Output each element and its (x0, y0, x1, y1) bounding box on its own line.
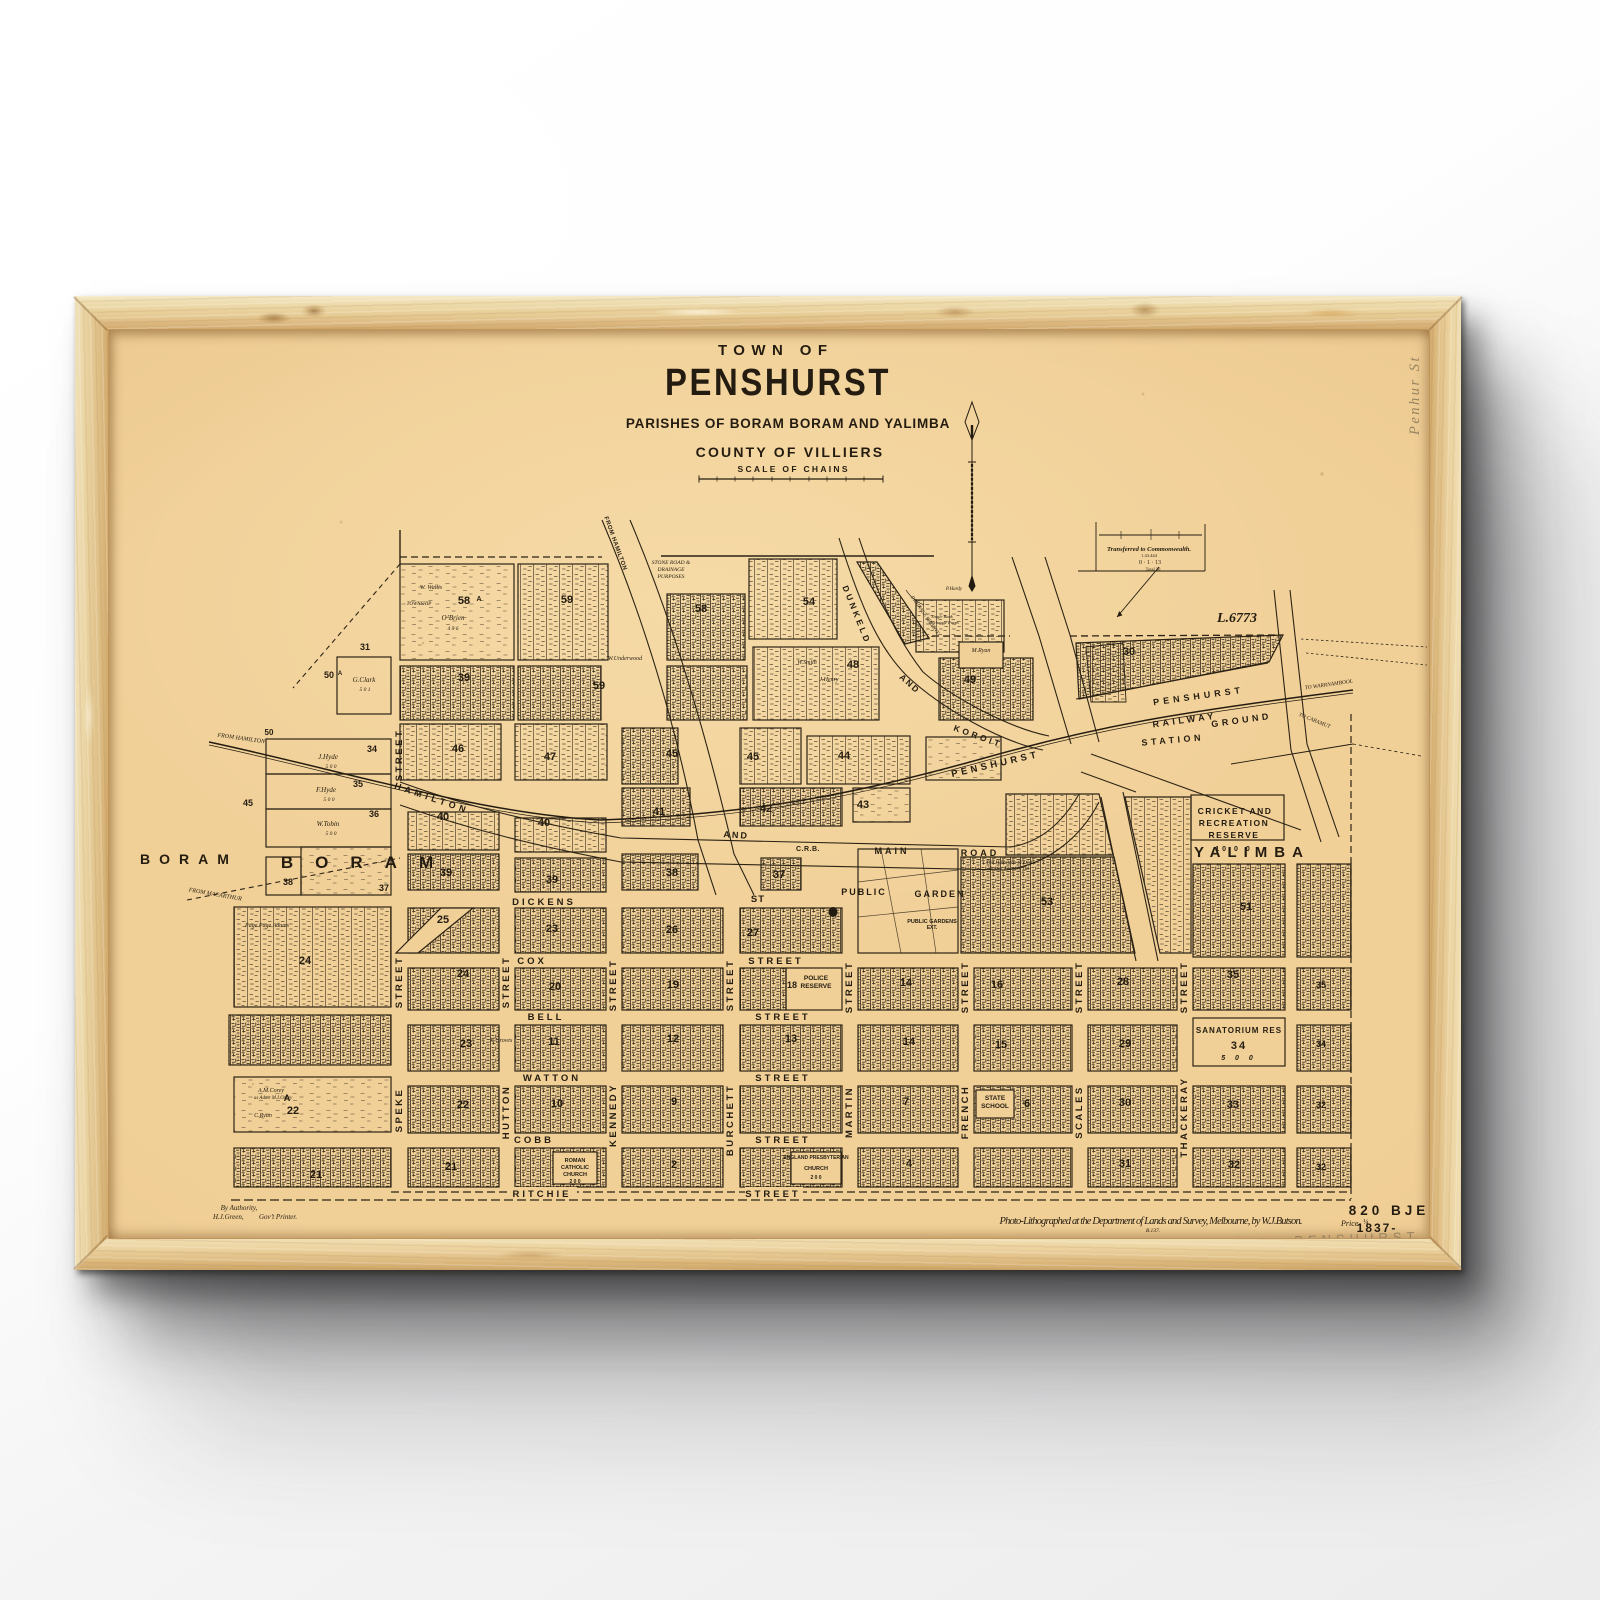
svg-text:42: 42 (760, 803, 772, 815)
svg-text:5 0 0: 5 0 0 (324, 797, 335, 803)
svg-text:46: 46 (452, 743, 464, 755)
svg-text:W.Tobin: W.Tobin (317, 820, 340, 828)
svg-text:59: 59 (561, 594, 573, 606)
svg-text:F.Hyde: F.Hyde (315, 786, 336, 794)
svg-text:43: 43 (857, 799, 869, 811)
svg-text:FROM MACARTHUR: FROM MACARTHUR (187, 887, 242, 902)
svg-text:24: 24 (457, 968, 470, 980)
svg-text:DUNKELD: DUNKELD (840, 584, 873, 646)
svg-text:WATTON: WATTON (523, 1073, 581, 1084)
svg-text:BORAM: BORAM (281, 853, 455, 872)
svg-text:23: 23 (546, 923, 558, 935)
svg-text:30: 30 (1119, 1097, 1131, 1109)
svg-text:G.Clark: G.Clark (353, 676, 377, 684)
svg-text:A.M.Corey: A.M.Corey (257, 1088, 284, 1094)
svg-text:59: 59 (593, 680, 605, 692)
svg-text:20: 20 (549, 981, 561, 993)
svg-text:53: 53 (1041, 896, 1053, 908)
svg-text:33: 33 (1227, 1099, 1239, 1111)
svg-text:H.J.Green,: H.J.Green, (212, 1213, 244, 1221)
svg-text:STREET: STREET (960, 961, 971, 1013)
svg-text:P.Hardy: P.Hardy (945, 587, 963, 592)
svg-text:YALIMBA: YALIMBA (1194, 844, 1310, 861)
svg-text:5 0 0: 5 0 0 (326, 831, 337, 837)
svg-text:41: 41 (653, 806, 665, 818)
svg-text:TO WARRNAMBOOL: TO WARRNAMBOOL (1304, 679, 1353, 692)
svg-text:W.Underwood: W.Underwood (608, 656, 643, 662)
svg-text:FROM HAMILTON: FROM HAMILTON (216, 733, 266, 746)
svg-text:58: 58 (458, 595, 470, 607)
svg-text:30: 30 (1123, 646, 1135, 658)
svg-text:Single Bank: Single Bank (931, 614, 954, 619)
svg-text:AND: AND (723, 829, 749, 841)
svg-text:27: 27 (747, 927, 759, 939)
svg-text:15: 15 (995, 1039, 1007, 1051)
svg-text:2 0 0: 2 0 0 (569, 1179, 580, 1185)
svg-text:2: 2 (671, 1159, 677, 1171)
svg-text:11: 11 (548, 1036, 560, 1048)
svg-text:Gov’t Printer.: Gov’t Printer. (259, 1213, 297, 1221)
svg-text:TOWNSHIP: TOWNSHIP (407, 602, 432, 607)
svg-text:45: 45 (243, 798, 253, 808)
svg-text:STREET: STREET (748, 956, 803, 967)
svg-text:STREET: STREET (1179, 961, 1190, 1013)
svg-text:Photo-Lithographed at the Depa: Photo-Lithographed at the Department of … (999, 1216, 1303, 1227)
svg-text:37: 37 (379, 883, 389, 893)
svg-text:47: 47 (544, 751, 556, 763)
svg-text:32: 32 (1316, 1162, 1326, 1172)
svg-text:Page Page Adams: Page Page Adams (244, 923, 290, 929)
svg-text:32: 32 (1316, 1100, 1326, 1110)
svg-text:PENSHURST: PENSHURST (1153, 685, 1245, 708)
svg-text:PENSHURST: PENSHURST (1294, 1229, 1420, 1238)
svg-text:B.137.: B.137. (1146, 1228, 1160, 1234)
svg-text:CHURCH: CHURCH (804, 1166, 828, 1172)
svg-text:26: 26 (666, 924, 678, 936)
svg-text:48: 48 (847, 659, 859, 671)
svg-text:19: 19 (667, 979, 679, 991)
svg-text:COUNTY OF VILLIERS: COUNTY OF VILLIERS (696, 444, 885, 460)
svg-text:RESERVE: RESERVE (801, 983, 833, 990)
svg-text:24: 24 (299, 955, 312, 967)
svg-text:RITCHIE: RITCHIE (513, 1189, 572, 1200)
svg-text:38: 38 (666, 867, 678, 879)
svg-text:W.Smith: W.Smith (797, 660, 817, 666)
svg-text:21: 21 (445, 1161, 457, 1173)
svg-text:L.6773: L.6773 (1216, 611, 1257, 626)
svg-text:5 0 1: 5 0 1 (360, 687, 371, 693)
svg-text:40: 40 (538, 817, 550, 829)
svg-text:45: 45 (747, 751, 759, 763)
svg-text:RECREATION: RECREATION (1199, 818, 1270, 828)
svg-text:HUTTON: HUTTON (501, 1085, 512, 1139)
svg-text:POLICE: POLICE (804, 975, 829, 982)
svg-text:PURPOSES: PURPOSES (657, 574, 685, 580)
svg-text:22: 22 (287, 1105, 299, 1117)
svg-text:21: 21 (310, 1169, 322, 1181)
svg-text:35: 35 (1316, 980, 1326, 990)
svg-text:0 · 1 · 13: 0 · 1 · 13 (1139, 560, 1161, 566)
svg-text:DRAINAGE: DRAINAGE (657, 567, 686, 573)
svg-text:Total 30: Total 30 (1146, 567, 1162, 572)
svg-text:STREET: STREET (755, 1073, 810, 1084)
svg-text:THACKERAY: THACKERAY (1179, 1076, 1190, 1157)
svg-text:9: 9 (671, 1096, 677, 1108)
svg-text:ENGLAND PRESBYTERIAN: ENGLAND PRESBYTERIAN (783, 1155, 849, 1161)
svg-text:14: 14 (903, 1036, 916, 1048)
svg-text:31: 31 (1119, 1158, 1131, 1170)
svg-text:ST: ST (751, 894, 765, 905)
svg-text:6: 6 (1024, 1098, 1030, 1110)
svg-text:J. Groves: J. Groves (490, 1038, 513, 1044)
svg-text:36: 36 (369, 809, 379, 819)
svg-text:18: 18 (787, 980, 797, 990)
svg-text:37: 37 (773, 869, 785, 881)
svg-text:39: 39 (458, 672, 470, 684)
svg-text:44: 44 (838, 750, 851, 762)
svg-text:STREET: STREET (394, 729, 405, 781)
svg-text:5 0 0: 5 0 0 (1221, 1055, 1257, 1062)
svg-text:Exchange Purps: Exchange Purps (928, 620, 959, 625)
svg-text:M.Ryan: M.Ryan (971, 648, 991, 654)
svg-text:STATE: STATE (985, 1095, 1006, 1102)
svg-text:TOWN OF: TOWN OF (718, 342, 834, 359)
svg-text:PUBLIC: PUBLIC (841, 887, 887, 897)
svg-text:5 0 0: 5 0 0 (326, 764, 337, 770)
svg-text:STREET: STREET (608, 959, 619, 1011)
svg-text:W. Wallis: W. Wallis (420, 585, 443, 591)
svg-text:SCHOOL: SCHOOL (981, 1103, 1009, 1110)
svg-text:BORAM: BORAM (140, 851, 238, 867)
svg-text:C.Ryan: C.Ryan (254, 1113, 272, 1119)
svg-text:Penhur St: Penhur St (1407, 355, 1423, 436)
svg-text:MAIN: MAIN (875, 846, 910, 856)
svg-text:12: 12 (667, 1033, 679, 1045)
svg-text:BELL: BELL (528, 1012, 565, 1023)
svg-text:AND: AND (898, 672, 923, 696)
svg-text:PARISHES OF BORAM BORAM AND YA: PARISHES OF BORAM BORAM AND YALIMBA (626, 416, 950, 431)
svg-text:34: 34 (1316, 1039, 1326, 1049)
svg-text:STATION: STATION (1141, 732, 1204, 747)
svg-text:2 0 0: 2 0 0 (810, 1175, 821, 1181)
svg-text:45: 45 (666, 748, 678, 760)
svg-text:4 5 6: 4 5 6 (448, 625, 459, 632)
svg-text:BURCHETT: BURCHETT (725, 1084, 736, 1156)
svg-text:C.R.B.: C.R.B. (796, 846, 820, 853)
svg-text:STREET: STREET (745, 1189, 800, 1200)
svg-text:10: 10 (551, 1098, 563, 1110)
svg-text:58: 58 (695, 603, 707, 615)
svg-text:54: 54 (803, 596, 816, 608)
svg-text:28: 28 (1117, 976, 1129, 988)
svg-text:STREET: STREET (755, 1135, 810, 1146)
svg-text:39: 39 (546, 874, 558, 886)
svg-text:as Admr M.I.Corey: as Admr M.I.Corey (254, 1096, 293, 1101)
svg-text:16: 16 (991, 979, 1003, 991)
svg-text:35: 35 (353, 779, 363, 789)
svg-text:38: 38 (283, 877, 293, 887)
svg-text:GROUND: GROUND (1211, 711, 1273, 729)
svg-text:4: 4 (906, 1158, 913, 1170)
svg-text:O’Brien: O’Brien (442, 614, 465, 622)
svg-text:32: 32 (1228, 1159, 1240, 1171)
svg-text:35: 35 (1227, 969, 1239, 981)
svg-text:COX: COX (517, 956, 547, 967)
svg-text:By Authority,: By Authority, (221, 1204, 258, 1212)
svg-text:STREET: STREET (755, 1012, 810, 1023)
svg-text:Butter Factory Co: Butter Factory Co (989, 866, 1030, 872)
svg-text:STREET: STREET (394, 956, 405, 1008)
svg-text:CHURCH: CHURCH (563, 1172, 587, 1178)
svg-text:SCALES: SCALES (1074, 1085, 1085, 1139)
svg-text:RESERVE: RESERVE (1209, 830, 1260, 840)
svg-text:51: 51 (1240, 901, 1252, 913)
svg-text:1.43.444: 1.43.444 (1141, 553, 1158, 558)
svg-text:STREET: STREET (1074, 961, 1085, 1013)
svg-text:DICKENS: DICKENS (512, 897, 576, 908)
svg-text:50: 50 (324, 670, 334, 680)
svg-text:SCALE OF CHAINS: SCALE OF CHAINS (738, 464, 851, 474)
svg-text:STREET: STREET (501, 956, 512, 1008)
svg-text:29: 29 (1119, 1038, 1131, 1050)
svg-text:GARDEN: GARDEN (914, 889, 965, 899)
svg-text:34: 34 (1231, 1040, 1247, 1052)
svg-text:COBB: COBB (514, 1135, 554, 1146)
svg-text:39: 39 (440, 867, 452, 879)
svg-text:SANATORIUM RES: SANATORIUM RES (1196, 1026, 1282, 1035)
svg-text:34: 34 (367, 744, 377, 754)
svg-text:A: A (338, 671, 343, 677)
svg-text:PENSHURST: PENSHURST (665, 362, 891, 404)
svg-text:STREET: STREET (844, 961, 855, 1013)
svg-text:13: 13 (785, 1033, 797, 1045)
svg-text:820 BJE: 820 BJE (1349, 1203, 1429, 1218)
svg-text:31: 31 (360, 642, 370, 652)
svg-text:49: 49 (964, 674, 976, 686)
svg-text:STONE ROAD &: STONE ROAD & (652, 560, 691, 566)
svg-text:CRICKET AND: CRICKET AND (1198, 806, 1273, 816)
svg-text:14: 14 (900, 977, 913, 989)
svg-text:HAMILTON: HAMILTON (393, 781, 471, 816)
svg-text:STREET: STREET (725, 959, 736, 1011)
svg-text:SPEKE: SPEKE (394, 1088, 405, 1133)
svg-text:MARTIN: MARTIN (844, 1086, 855, 1138)
svg-text:EXT.: EXT. (927, 925, 938, 931)
svg-text:22: 22 (457, 1099, 469, 1111)
svg-text:A: A (476, 596, 481, 603)
svg-text:ROAD: ROAD (961, 848, 1000, 858)
svg-text:23: 23 (460, 1038, 472, 1050)
svg-text:FRENCH: FRENCH (960, 1085, 971, 1140)
svg-text:40: 40 (437, 811, 449, 823)
svg-text:KENNEDY: KENNEDY (608, 1083, 619, 1147)
svg-text:CATHOLIC: CATHOLIC (561, 1165, 589, 1171)
svg-text:50: 50 (265, 728, 274, 737)
svg-text:FROM HAMILTON: FROM HAMILTON (602, 516, 627, 572)
svg-text:ROMAN: ROMAN (565, 1158, 586, 1164)
svg-text:25: 25 (437, 914, 449, 926)
svg-text:Transferred to Commonwealth.: Transferred to Commonwealth. (1107, 546, 1191, 553)
svg-text:J.Henry: J.Henry (819, 677, 838, 683)
svg-text:7: 7 (903, 1096, 909, 1108)
svg-text:TO CARAMUT: TO CARAMUT (1298, 712, 1332, 731)
svg-text:J.Hyde: J.Hyde (318, 753, 338, 761)
